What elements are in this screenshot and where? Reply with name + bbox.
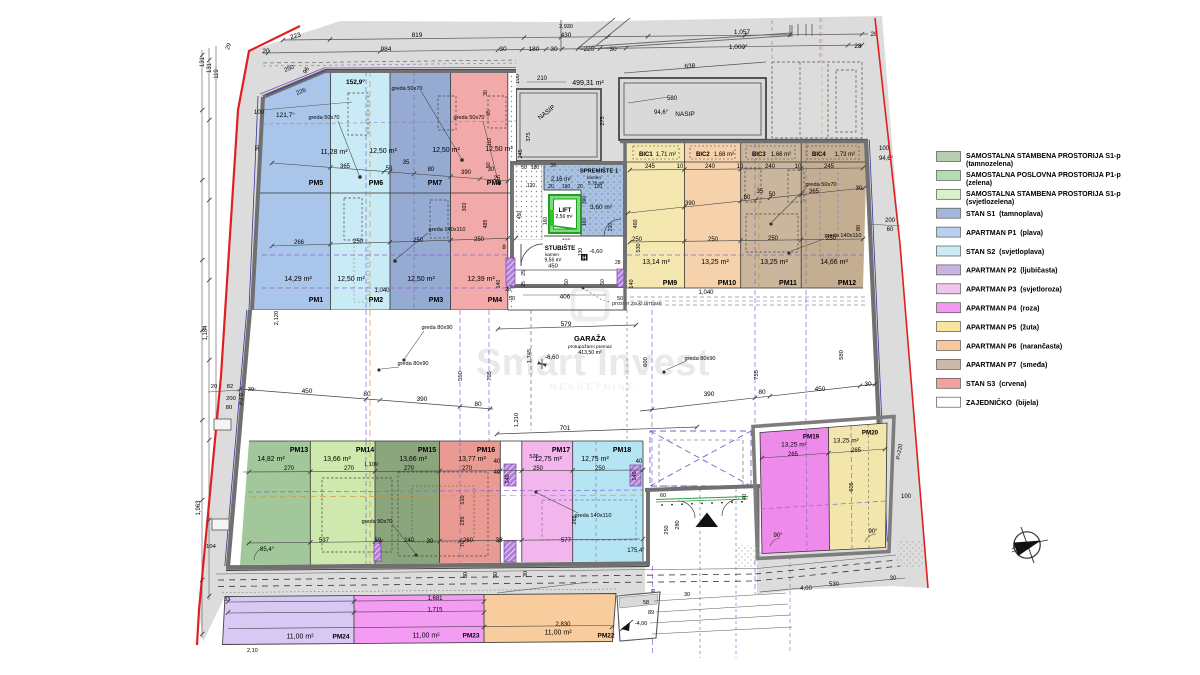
svg-text:499,31 m²: 499,31 m²	[572, 80, 604, 87]
svg-text:PM7: PM7	[428, 180, 443, 187]
svg-text:-4,00: -4,00	[635, 621, 648, 627]
svg-text:1,68 m²: 1,68 m²	[714, 152, 734, 158]
svg-text:140: 140	[629, 279, 635, 288]
svg-text:greda 140x110: greda 140x110	[825, 233, 862, 239]
svg-text:2,120: 2,120	[274, 311, 280, 326]
svg-text:580: 580	[839, 350, 845, 360]
svg-text:BIC4: BIC4	[812, 152, 826, 158]
svg-text:28: 28	[615, 260, 621, 266]
svg-text:250: 250	[708, 237, 719, 243]
svg-text:50: 50	[521, 165, 527, 171]
svg-text:13,77 m²: 13,77 m²	[458, 456, 486, 463]
svg-text:40: 40	[494, 459, 501, 465]
svg-text:450: 450	[517, 211, 523, 220]
svg-text:240: 240	[705, 164, 716, 170]
svg-text:2,930: 2,930	[559, 24, 573, 30]
svg-text:NEKRETNINE: NEKRETNINE	[550, 382, 636, 393]
svg-text:30: 30	[499, 46, 507, 53]
svg-text:PM9: PM9	[663, 280, 678, 287]
svg-text:131: 131	[207, 62, 213, 73]
svg-text:13,25 m²: 13,25 m²	[701, 259, 729, 266]
svg-text:1,109: 1,109	[364, 462, 378, 468]
svg-text:greda 80x90: greda 80x90	[421, 325, 452, 331]
svg-text:80: 80	[856, 225, 862, 231]
svg-text:PM4: PM4	[488, 297, 503, 304]
svg-text:195: 195	[460, 516, 466, 525]
svg-text:PM12: PM12	[838, 280, 856, 287]
svg-text:13,25 m²: 13,25 m²	[760, 259, 788, 266]
svg-text:1,184: 1,184	[203, 325, 209, 341]
svg-text:1,681: 1,681	[427, 596, 443, 602]
svg-text:1,715: 1,715	[427, 608, 443, 614]
svg-text:PM24: PM24	[333, 634, 350, 641]
svg-text:APARTMAN P3 (svjetloroza): APARTMAN P3 (svjetloroza)	[966, 287, 1062, 294]
svg-text:1,71 m²: 1,71 m²	[656, 152, 676, 158]
svg-text:1,66 m²: 1,66 m²	[771, 152, 791, 158]
svg-text:485: 485	[483, 220, 489, 229]
svg-text:406: 406	[560, 294, 571, 301]
svg-text:140: 140	[496, 280, 502, 289]
svg-text:APARTMAN P6 (narančasta): APARTMAN P6 (narančasta)	[966, 344, 1062, 351]
svg-text:250: 250	[474, 237, 485, 243]
svg-text:12,75 m²: 12,75 m²	[581, 456, 609, 463]
svg-text:510: 510	[460, 495, 466, 504]
svg-text:577: 577	[561, 538, 572, 544]
svg-text:537: 537	[319, 538, 330, 544]
svg-text:1,000: 1,000	[729, 44, 746, 51]
svg-text:600: 600	[643, 357, 649, 367]
svg-text:12,50 m²: 12,50 m²	[337, 276, 365, 283]
svg-text:180: 180	[529, 46, 540, 53]
svg-text:SAMOSTALNA STAMBENA PROSTORIJA: SAMOSTALNA STAMBENA PROSTORIJA S1-p	[966, 153, 1121, 160]
svg-text:PM3: PM3	[429, 297, 444, 304]
svg-text:30: 30	[493, 572, 499, 578]
svg-text:605: 605	[849, 482, 855, 491]
svg-text:250: 250	[664, 525, 670, 534]
svg-text:100: 100	[879, 146, 890, 152]
svg-text:35: 35	[757, 189, 764, 195]
svg-text:85,4°: 85,4°	[260, 547, 275, 553]
svg-text:60: 60	[660, 493, 666, 499]
svg-text:-6,60: -6,60	[589, 249, 602, 255]
svg-text:14,82 m²: 14,82 m²	[257, 456, 285, 463]
svg-text:PM23: PM23	[463, 633, 480, 640]
svg-text:1,040: 1,040	[698, 290, 714, 296]
svg-text:ZAJEDNIČKO (bijela): ZAJEDNIČKO (bijela)	[966, 398, 1038, 407]
svg-text:40: 40	[636, 459, 643, 465]
svg-text:BIC3: BIC3	[752, 152, 766, 158]
svg-text:375: 375	[526, 132, 532, 141]
svg-text:(zelena): (zelena)	[966, 180, 992, 187]
svg-text:11,00 m²: 11,00 m²	[544, 630, 572, 637]
svg-text:PM14: PM14	[356, 447, 374, 454]
svg-text:kamen: kamen	[545, 252, 559, 257]
svg-text:460: 460	[633, 219, 639, 228]
svg-text:50: 50	[509, 296, 515, 302]
svg-text:1,73 m²: 1,73 m²	[835, 152, 855, 158]
svg-text:PM17: PM17	[552, 447, 570, 454]
svg-text:35: 35	[403, 160, 410, 166]
svg-text:25: 25	[521, 270, 527, 276]
svg-text:greda 140x110: greda 140x110	[575, 513, 612, 519]
svg-text:250: 250	[768, 236, 779, 242]
svg-text:89: 89	[648, 610, 654, 616]
svg-text:greda 80x90: greda 80x90	[684, 356, 715, 362]
svg-text:210: 210	[537, 76, 548, 82]
svg-text:100: 100	[901, 494, 912, 500]
svg-text:250: 250	[632, 237, 643, 243]
svg-text:13,66 m²: 13,66 m²	[323, 456, 351, 463]
svg-text:APARTMAN P4 (roza): APARTMAN P4 (roza)	[966, 306, 1039, 313]
svg-text:STAN S3 (crvena): STAN S3 (crvena)	[966, 381, 1027, 388]
svg-text:13,66 m²: 13,66 m²	[399, 456, 427, 463]
svg-text:180: 180	[531, 165, 540, 171]
svg-text:119: 119	[214, 69, 220, 79]
svg-text:300: 300	[462, 203, 468, 212]
svg-text:245: 245	[824, 164, 835, 170]
svg-text:579: 579	[561, 321, 572, 328]
svg-text:121,7°: 121,7°	[276, 111, 295, 119]
svg-text:530: 530	[636, 243, 642, 252]
svg-text:30: 30	[427, 539, 434, 545]
svg-text:82: 82	[227, 384, 233, 390]
svg-text:PM6: PM6	[369, 180, 384, 187]
svg-text:270: 270	[284, 466, 295, 472]
svg-text:PM13: PM13	[290, 447, 308, 454]
svg-text:13,14 m²: 13,14 m²	[642, 259, 670, 266]
svg-text:2,830: 2,830	[555, 622, 571, 628]
svg-text:104: 104	[206, 544, 216, 550]
svg-text:30: 30	[523, 571, 529, 577]
svg-text:265: 265	[788, 452, 799, 458]
svg-text:greda 80x90: greda 80x90	[397, 361, 428, 367]
svg-text:prostor za kl.ormare: prostor za kl.ormare	[612, 301, 662, 307]
svg-text:94,6°: 94,6°	[654, 110, 669, 116]
svg-text:APARTMAN P2 (ljubičasta): APARTMAN P2 (ljubičasta)	[966, 268, 1058, 275]
svg-text:140: 140	[632, 471, 638, 480]
svg-text:250: 250	[353, 239, 364, 245]
svg-text:200: 200	[885, 218, 896, 224]
svg-text:GARAŽA: GARAŽA	[574, 334, 607, 343]
svg-text:SPREMIŠTE 1: SPREMIŠTE 1	[580, 167, 619, 175]
svg-text:STUBIŠTE: STUBIŠTE	[545, 244, 576, 252]
svg-text:365: 365	[809, 189, 820, 195]
svg-text:PM20: PM20	[862, 430, 879, 437]
svg-text:413,50 m²: 413,50 m²	[578, 350, 602, 356]
svg-text:270: 270	[404, 466, 415, 472]
svg-text:greda 50x70: greda 50x70	[308, 115, 339, 121]
svg-text:80: 80	[226, 405, 232, 411]
svg-text:13,25 m²: 13,25 m²	[781, 442, 807, 449]
svg-text:80: 80	[474, 401, 482, 408]
svg-text:PM1: PM1	[309, 297, 324, 304]
svg-text:245: 245	[645, 164, 656, 170]
svg-text:390: 390	[461, 170, 472, 176]
svg-text:PJ 0: PJ 0	[239, 393, 245, 405]
svg-text:2,16 m²: 2,16 m²	[551, 177, 571, 183]
svg-text:PM2: PM2	[369, 297, 384, 304]
svg-text:3,60 m²: 3,60 m²	[590, 204, 613, 211]
svg-text:12,39 m²: 12,39 m²	[467, 276, 495, 283]
svg-text:1,210: 1,210	[514, 413, 520, 428]
svg-text:525: 525	[529, 454, 538, 460]
svg-text:40: 40	[742, 494, 748, 500]
svg-text:390: 390	[417, 396, 428, 403]
svg-text:200: 200	[226, 396, 236, 402]
svg-text:PM11: PM11	[779, 280, 797, 287]
svg-text:250: 250	[595, 466, 606, 472]
svg-text:30: 30	[255, 145, 261, 151]
svg-text:50: 50	[386, 166, 393, 172]
svg-text:PM15: PM15	[418, 447, 436, 454]
svg-text:65: 65	[486, 110, 492, 116]
svg-text:25: 25	[494, 176, 501, 182]
svg-text:BIC1: BIC1	[639, 152, 653, 158]
svg-text:10: 10	[677, 164, 684, 170]
svg-text:13,25 m²: 13,25 m²	[833, 438, 859, 445]
svg-text:PM19: PM19	[803, 434, 820, 441]
svg-text:70: 70	[460, 541, 466, 547]
svg-text:30: 30	[550, 46, 558, 53]
svg-text:greda 50x70: greda 50x70	[805, 182, 836, 188]
svg-text:11,00 m²: 11,00 m²	[412, 633, 440, 640]
svg-text:APARTMAN P1 (plava): APARTMAN P1 (plava)	[966, 230, 1043, 237]
svg-text:greda 90x70: greda 90x70	[361, 519, 392, 525]
svg-text:450: 450	[548, 264, 558, 270]
svg-text:NASIP: NASIP	[675, 111, 695, 118]
svg-text:2,56 m²: 2,56 m²	[556, 214, 573, 220]
svg-text:80: 80	[758, 389, 766, 396]
svg-text:25: 25	[521, 281, 527, 287]
svg-text:11,28 m²: 11,28 m²	[320, 149, 348, 156]
svg-text:14,66 m²: 14,66 m²	[820, 259, 848, 266]
svg-text:240: 240	[765, 164, 776, 170]
svg-text:greda 50x70: greda 50x70	[391, 86, 422, 92]
svg-text:58: 58	[643, 600, 649, 606]
svg-text:STAN S2 (svjetloplava): STAN S2 (svjetloplava)	[966, 249, 1044, 256]
svg-text:175,4°: 175,4°	[627, 548, 645, 554]
svg-text:1,040: 1,040	[374, 288, 390, 294]
svg-text:450: 450	[815, 386, 826, 393]
svg-text:20: 20	[548, 184, 554, 190]
svg-text:H: H	[582, 256, 586, 262]
svg-text:30: 30	[684, 592, 690, 598]
svg-text:BIC2: BIC2	[696, 152, 710, 158]
svg-text:160: 160	[582, 218, 588, 227]
svg-text:275: 275	[600, 116, 606, 125]
svg-text:50: 50	[486, 162, 492, 168]
svg-text:(tamnozelena): (tamnozelena)	[966, 161, 1013, 168]
svg-text:250: 250	[533, 466, 544, 472]
svg-text:819: 819	[412, 32, 423, 39]
svg-text:-6,60: -6,60	[545, 355, 559, 361]
svg-text:30: 30	[248, 387, 254, 393]
svg-text:39: 39	[550, 163, 556, 169]
svg-text:100: 100	[254, 110, 265, 116]
svg-text:30: 30	[483, 90, 489, 96]
svg-text:APARTMAN P5 (žuta): APARTMAN P5 (žuta)	[966, 325, 1039, 332]
svg-text:365: 365	[340, 164, 351, 170]
svg-text:250: 250	[413, 238, 424, 244]
svg-text:390: 390	[685, 201, 696, 207]
svg-text:PM18: PM18	[613, 447, 631, 454]
svg-text:80: 80	[428, 167, 435, 173]
svg-text:11,00 m²: 11,00 m²	[286, 634, 314, 641]
svg-text:131: 131	[200, 56, 206, 67]
svg-text:greda 50x70: greda 50x70	[453, 115, 484, 121]
svg-text:50: 50	[600, 279, 606, 285]
svg-text:14,29 m²: 14,29 m²	[284, 276, 312, 283]
svg-text:20: 20	[211, 384, 217, 390]
svg-text:greda 140x110: greda 140x110	[429, 227, 466, 233]
svg-text:270: 270	[462, 466, 473, 472]
svg-text:30: 30	[463, 572, 469, 578]
svg-text:12,50 m²: 12,50 m²	[432, 147, 460, 154]
svg-text:80: 80	[744, 195, 751, 201]
svg-text:20: 20	[577, 184, 583, 190]
svg-text:12,50 m²: 12,50 m²	[407, 276, 435, 283]
svg-text:1,745: 1,745	[527, 349, 533, 364]
svg-text:390: 390	[704, 391, 715, 398]
svg-text:245: 245	[518, 149, 524, 158]
svg-text:755: 755	[487, 371, 493, 381]
svg-text:50: 50	[564, 279, 570, 285]
svg-text:280: 280	[675, 520, 681, 529]
svg-text:120: 120	[594, 184, 603, 190]
svg-text:PM16: PM16	[477, 447, 495, 454]
svg-text:160: 160	[562, 184, 571, 190]
svg-text:110: 110	[487, 138, 493, 146]
svg-text:60: 60	[887, 227, 894, 233]
svg-text:638: 638	[684, 63, 696, 71]
svg-text:PM10: PM10	[718, 280, 736, 287]
svg-text:450: 450	[302, 388, 313, 395]
svg-text:SAMOSTALNA POSLOVNA PROSTORIJA: SAMOSTALNA POSLOVNA PROSTORIJA P1-p	[966, 172, 1121, 179]
svg-text:50: 50	[769, 192, 776, 198]
svg-text:580: 580	[667, 96, 678, 102]
svg-text:30: 30	[856, 186, 863, 192]
svg-text:STAN S1 (tamnoplava): STAN S1 (tamnoplava)	[966, 211, 1043, 218]
svg-text:265: 265	[851, 448, 862, 454]
svg-text:270: 270	[344, 466, 355, 472]
svg-text:1,963: 1,963	[196, 500, 202, 516]
svg-text:300: 300	[582, 196, 588, 205]
svg-text:(svjetlozelena): (svjetlozelena)	[966, 199, 1014, 206]
svg-text:550: 550	[458, 371, 464, 381]
svg-text:APARTMAN P7 (smeđa): APARTMAN P7 (smeđa)	[966, 362, 1047, 369]
svg-text:kamen: kamen	[587, 175, 601, 180]
svg-text:PM22: PM22	[598, 633, 615, 640]
svg-text:30: 30	[864, 381, 872, 388]
svg-text:PM5: PM5	[309, 180, 324, 187]
svg-text:152,9°: 152,9°	[346, 78, 365, 86]
svg-text:140: 140	[505, 474, 511, 483]
svg-text:12,50 m²: 12,50 m²	[369, 148, 397, 155]
svg-text:2,10: 2,10	[247, 648, 258, 654]
svg-text:266: 266	[294, 240, 305, 246]
svg-text:701: 701	[560, 425, 571, 432]
svg-text:1,057: 1,057	[734, 29, 751, 36]
svg-text:120: 120	[527, 183, 536, 189]
svg-text:SAMOSTALNA STAMBENA PROSTORIJA: SAMOSTALNA STAMBENA PROSTORIJA S1-p	[966, 191, 1121, 198]
